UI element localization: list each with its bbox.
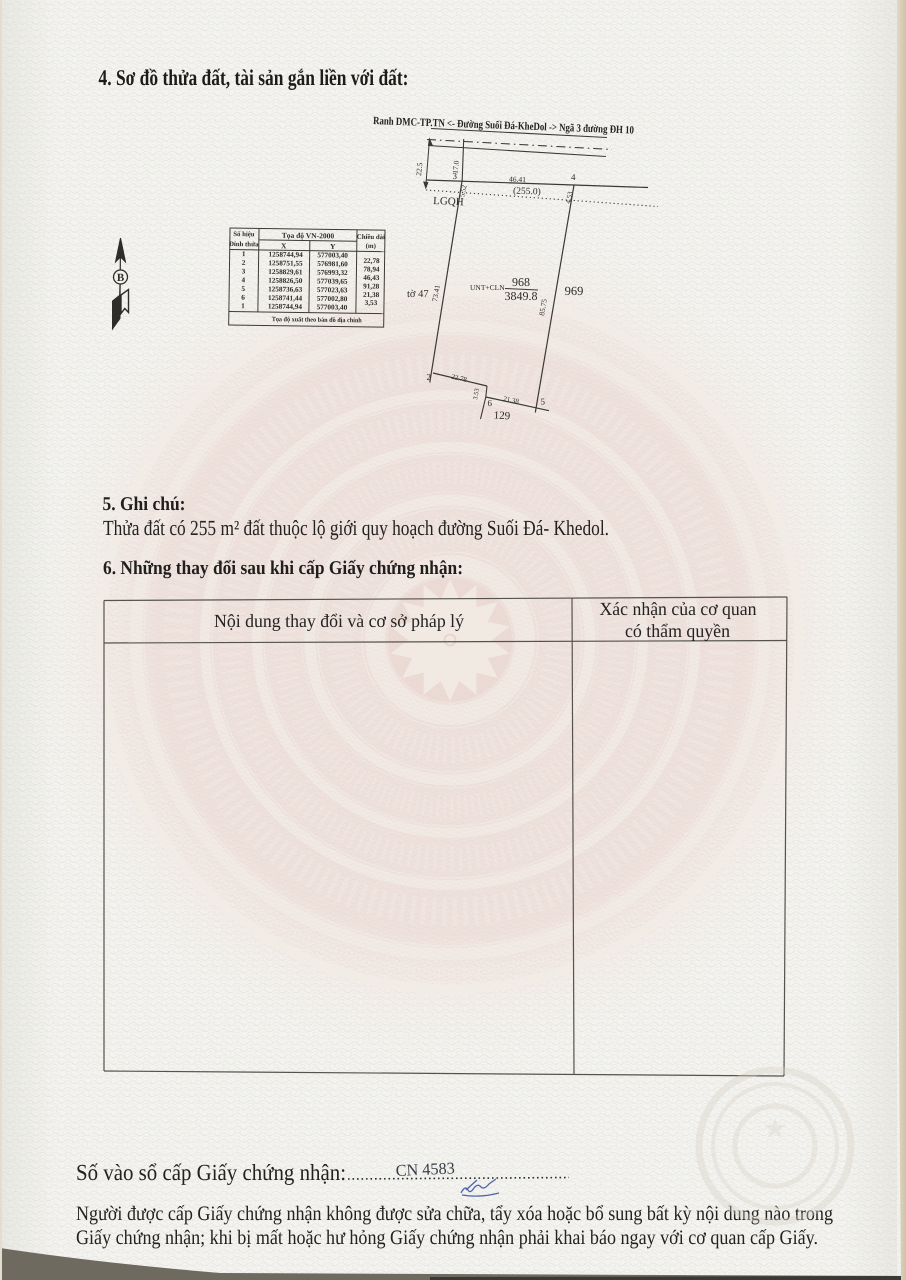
svg-text:(m): (m)	[366, 243, 376, 250]
svg-text:46,43: 46,43	[363, 274, 380, 282]
svg-text:78,94: 78,94	[363, 265, 380, 273]
svg-text:46.41: 46.41	[509, 175, 526, 185]
svg-text:3,53: 3,53	[365, 299, 378, 307]
svg-text:73.41: 73.41	[430, 284, 442, 302]
svg-text:6: 6	[241, 294, 245, 302]
svg-text:968: 968	[512, 275, 530, 289]
svg-text:1258736,63: 1258736,63	[268, 285, 303, 293]
svg-text:Ranh DMC-TP.TN <- Đường Suối Đ: Ranh DMC-TP.TN <- Đường Suối Đá-KheDol -…	[373, 115, 635, 137]
svg-text:577003,40: 577003,40	[317, 251, 348, 259]
svg-text:1258826,50: 1258826,50	[268, 277, 303, 285]
svg-text:1258741,44: 1258741,44	[268, 294, 303, 302]
svg-text:tờ 47: tờ 47	[407, 289, 429, 300]
svg-text:Số hiệu: Số hiệu	[233, 231, 255, 238]
svg-text:5: 5	[541, 397, 546, 407]
svg-text:577023,63: 577023,63	[317, 286, 348, 294]
svg-text:91,28: 91,28	[363, 282, 380, 290]
svg-text:1258751,55: 1258751,55	[268, 259, 303, 267]
svg-text:(255.0): (255.0)	[513, 187, 541, 198]
svg-text:Đỉnh thửa: Đỉnh thửa	[229, 241, 259, 248]
svg-text:3: 3	[453, 171, 458, 181]
svg-text:3849.8: 3849.8	[505, 289, 538, 303]
svg-text:577039,65: 577039,65	[317, 277, 348, 285]
svg-text:21,38: 21,38	[363, 291, 380, 299]
svg-text:Y: Y	[330, 242, 336, 251]
svg-text:969: 969	[565, 284, 584, 298]
svg-text:577002,80: 577002,80	[317, 295, 348, 303]
svg-text:4: 4	[571, 172, 576, 182]
svg-text:3.53: 3.53	[472, 388, 481, 400]
svg-text:577003,40: 577003,40	[317, 303, 348, 311]
svg-text:5: 5	[241, 285, 245, 293]
svg-text:Tọa độ xuất theo bản đồ địa ch: Tọa độ xuất theo bản đồ địa chính	[272, 316, 362, 324]
svg-text:576981,60: 576981,60	[317, 260, 348, 268]
svg-text:B: B	[117, 272, 125, 284]
svg-text:1: 1	[241, 302, 245, 310]
svg-text:Chiều dài: Chiều dài	[357, 234, 385, 241]
svg-text:129: 129	[493, 410, 511, 423]
svg-text:6: 6	[488, 398, 493, 408]
svg-text:1: 1	[242, 250, 246, 258]
svg-text:1258829,61: 1258829,61	[268, 268, 303, 276]
svg-text:85.75: 85.75	[537, 298, 549, 316]
svg-text:3: 3	[242, 268, 246, 276]
svg-text:22,78: 22,78	[363, 257, 380, 265]
svg-text:UNT+CLN: UNT+CLN	[470, 283, 505, 292]
svg-text:2: 2	[242, 259, 246, 267]
svg-text:4: 4	[241, 276, 245, 284]
svg-text:1258744,94: 1258744,94	[268, 303, 303, 311]
svg-text:22.5: 22.5	[414, 162, 424, 176]
svg-text:576993,32: 576993,32	[317, 269, 348, 277]
svg-text:Tọa độ VN-2000: Tọa độ VN-2000	[282, 231, 335, 241]
svg-text:22.78: 22.78	[451, 373, 469, 384]
svg-text:1258744,94: 1258744,94	[269, 251, 304, 259]
svg-text:2: 2	[427, 372, 432, 382]
svg-text:X: X	[281, 241, 287, 250]
svg-text:21.38: 21.38	[503, 395, 521, 406]
